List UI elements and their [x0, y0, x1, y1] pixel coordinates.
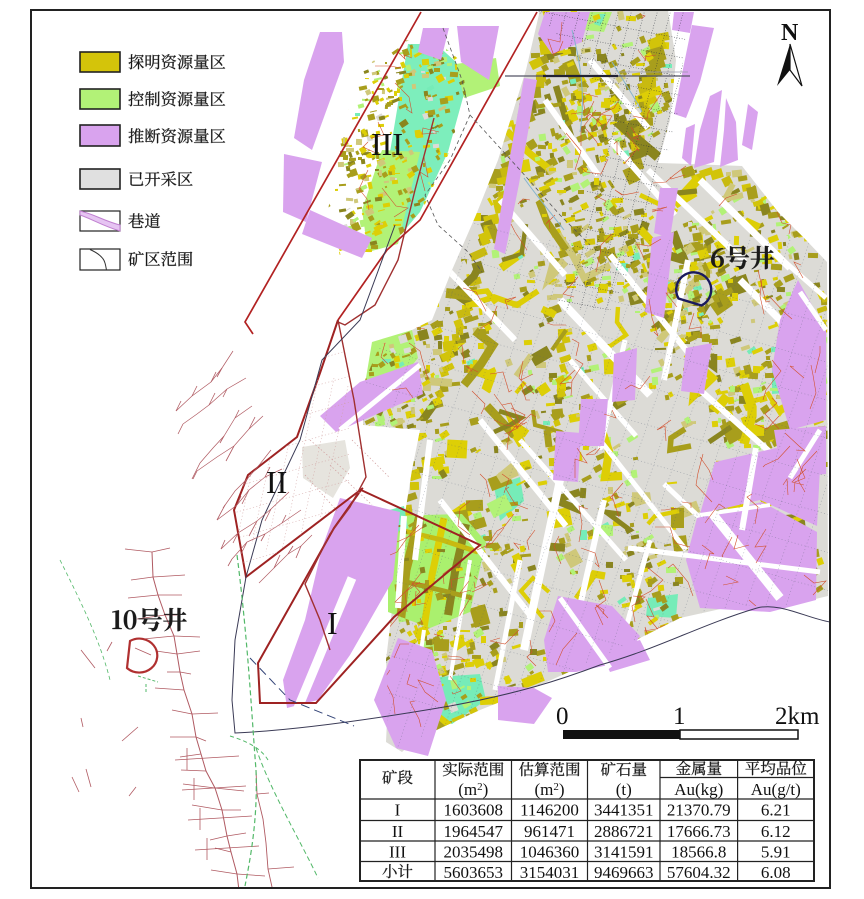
svg-text:Au(g/t): Au(g/t) [751, 780, 801, 799]
svg-text:(m2): (m2) [458, 780, 488, 799]
svg-text:2km: 2km [775, 703, 820, 730]
svg-text:(t): (t) [616, 780, 632, 799]
svg-text:9469663: 9469663 [594, 863, 654, 882]
svg-text:I: I [327, 605, 338, 641]
svg-text:6.12: 6.12 [761, 822, 791, 841]
svg-text:1: 1 [673, 703, 686, 730]
svg-text:III: III [371, 126, 403, 162]
svg-text:3154031: 3154031 [520, 863, 580, 882]
svg-text:5603653: 5603653 [444, 863, 504, 882]
svg-text:6.08: 6.08 [761, 863, 791, 882]
svg-text:18566.8: 18566.8 [671, 843, 726, 862]
svg-text:II: II [266, 464, 287, 500]
svg-text:57604.32: 57604.32 [667, 863, 731, 882]
svg-text:17666.73: 17666.73 [667, 822, 731, 841]
svg-text:(m2): (m2) [534, 780, 564, 799]
svg-text:2035498: 2035498 [444, 843, 504, 862]
svg-text:5.91: 5.91 [761, 843, 791, 862]
svg-text:1146200: 1146200 [520, 801, 579, 820]
svg-text:6.21: 6.21 [761, 801, 791, 820]
svg-text:1603608: 1603608 [444, 801, 504, 820]
svg-text:21370.79: 21370.79 [667, 801, 731, 820]
svg-text:2886721: 2886721 [594, 822, 654, 841]
svg-text:0: 0 [556, 703, 569, 730]
svg-text:II: II [392, 822, 404, 841]
svg-text:III: III [389, 843, 406, 862]
svg-text:3141591: 3141591 [594, 843, 654, 862]
svg-text:1964547: 1964547 [444, 822, 504, 841]
svg-text:961471: 961471 [524, 822, 575, 841]
svg-text:N: N [781, 20, 799, 46]
svg-text:1046360: 1046360 [520, 843, 580, 862]
svg-text:3441351: 3441351 [594, 801, 654, 820]
svg-text:Au(kg): Au(kg) [674, 780, 723, 799]
svg-text:I: I [395, 801, 401, 820]
